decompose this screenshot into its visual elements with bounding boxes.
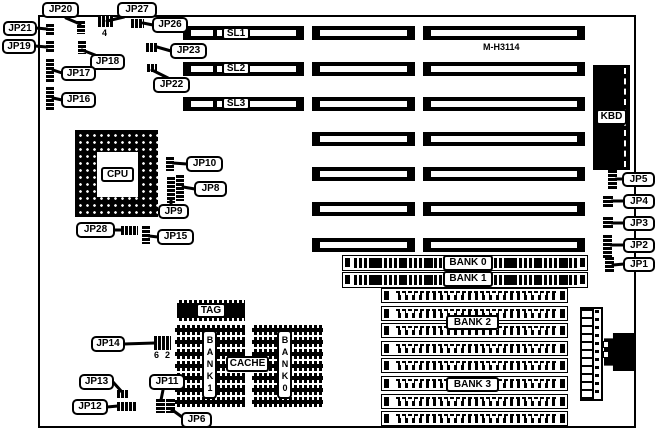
slot-label-sl2: SL2 [222, 62, 250, 75]
jumper-label-jp4: JP4 [623, 194, 655, 209]
simm-bank0-label: BANK 0 [443, 255, 493, 271]
jp27-pin-marker: 4 [102, 29, 107, 38]
jp14-pin-marker-6: 6 [154, 351, 159, 360]
jumper-label-jp5: JP5 [622, 172, 655, 187]
jumper-label-jp13: JP13 [79, 374, 114, 390]
cache-bank0-label: BANK0 [277, 330, 292, 399]
slot-label-sl1: SL1 [222, 27, 250, 40]
jumper-label-jp11: JP11 [149, 374, 185, 390]
slot-label-sl3: SL3 [222, 97, 250, 110]
jumper-label-jp1: JP1 [623, 257, 655, 272]
motherboard-jumper-diagram: M-H3114 [0, 0, 655, 430]
jumper-label-jp23: JP23 [170, 43, 207, 59]
jumper-label-jp8: JP8 [194, 181, 227, 197]
tag-label: TAG [196, 303, 226, 318]
jumper-label-jp6: JP6 [181, 412, 212, 428]
jumper-label-jp21: JP21 [3, 21, 37, 36]
jumper-label-jp10: JP10 [186, 156, 223, 172]
jumper-label-jp17: JP17 [61, 66, 96, 81]
jumper-label-jp22: JP22 [153, 77, 190, 93]
simm-bank2-label: BANK 2 [446, 315, 499, 330]
cpu-label: CPU [101, 167, 134, 182]
cache-bank1-label: BANK1 [202, 330, 217, 399]
jumper-label-jp28: JP28 [76, 222, 115, 238]
jumper-label-jp12: JP12 [72, 399, 108, 415]
jumper-label-jp3: JP3 [623, 216, 655, 231]
jumper-label-jp27: JP27 [117, 2, 157, 18]
jumper-label-jp16: JP16 [61, 92, 96, 108]
simm-bank1-label: BANK 1 [443, 271, 493, 287]
jumper-label-jp15: JP15 [157, 229, 194, 245]
kbd-label: KBD [596, 109, 627, 125]
jumper-label-jp20: JP20 [42, 2, 79, 18]
jumper-label-jp19: JP19 [2, 39, 36, 54]
cache-label: CACHE [226, 356, 269, 372]
jumper-label-jp2: JP2 [623, 238, 655, 253]
jumper-label-jp9: JP9 [158, 204, 189, 219]
jumper-label-jp14: JP14 [91, 336, 125, 352]
jumper-label-jp26: JP26 [152, 17, 188, 33]
jp14-pin-marker-2: 2 [165, 351, 170, 360]
chipset-model-text: M-H3114 [483, 43, 520, 52]
simm-bank3-label: BANK 3 [446, 377, 499, 392]
